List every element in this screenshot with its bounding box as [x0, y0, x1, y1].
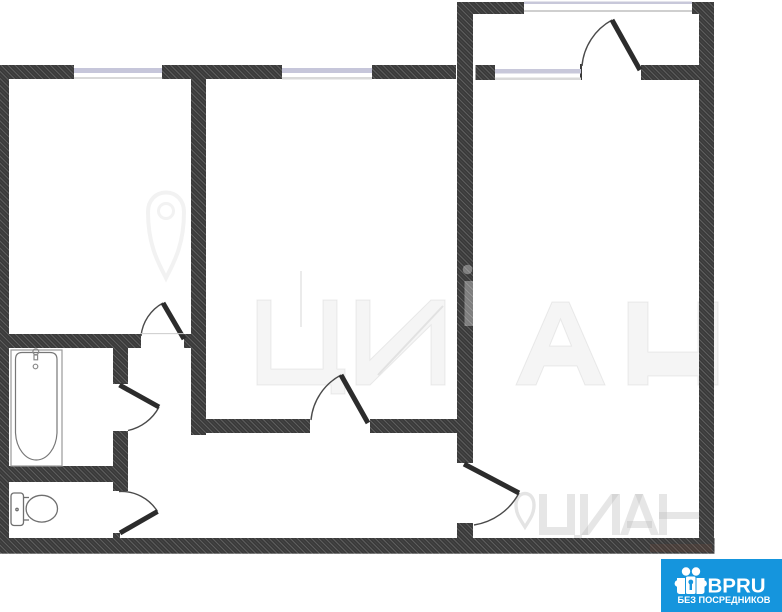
svg-text:БЕЗ ПОСРЕДНИКОВ: БЕЗ ПОСРЕДНИКОВ [678, 595, 771, 605]
